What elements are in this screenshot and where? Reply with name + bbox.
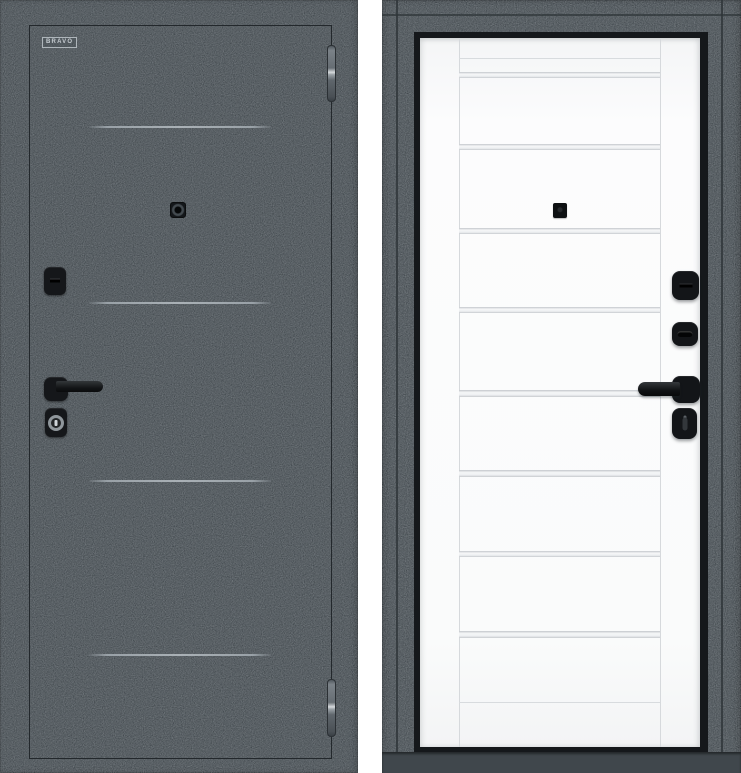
frame-groove-top bbox=[382, 14, 741, 16]
glass-strip bbox=[459, 551, 660, 557]
thumbturn-knob bbox=[678, 331, 693, 337]
door-product-photo: BRAVO bbox=[0, 0, 741, 773]
white-door-leaf bbox=[420, 38, 700, 747]
rail-seam-bottom bbox=[459, 702, 660, 703]
glass-strip bbox=[459, 470, 660, 477]
decorative-line bbox=[89, 480, 271, 482]
privacy-turn-escutcheon bbox=[672, 408, 697, 439]
cylinder-lock bbox=[45, 408, 67, 437]
glass-strip bbox=[459, 228, 660, 234]
thumbturn-escutcheon-lower bbox=[672, 322, 698, 346]
glass-strip bbox=[459, 307, 660, 313]
threshold bbox=[382, 752, 741, 773]
door-leaf-edge-outline bbox=[29, 25, 332, 759]
hinge-bottom bbox=[327, 679, 336, 737]
glass-strip bbox=[459, 631, 660, 638]
privacy-knob bbox=[682, 417, 687, 430]
decorative-line bbox=[89, 302, 271, 304]
hinge-top bbox=[327, 45, 336, 102]
decorative-line bbox=[89, 126, 271, 128]
glass-strip bbox=[459, 144, 660, 150]
peephole bbox=[170, 202, 186, 218]
keyhole-slot bbox=[50, 280, 60, 283]
door-exterior-view: BRAVO bbox=[0, 0, 358, 773]
brand-logo: BRAVO bbox=[42, 37, 77, 48]
door-interior-view bbox=[382, 0, 741, 773]
peephole bbox=[553, 203, 567, 218]
keyhole bbox=[55, 420, 58, 426]
frame-groove-left bbox=[396, 0, 398, 752]
lever-handle bbox=[638, 382, 680, 396]
thumbturn-escutcheon-upper bbox=[672, 271, 699, 300]
decorative-line bbox=[89, 654, 271, 656]
deadbolt-escutcheon bbox=[44, 267, 66, 295]
turn-slot bbox=[679, 284, 692, 287]
glass-strip bbox=[459, 72, 660, 78]
rail-seam-top bbox=[459, 58, 660, 59]
frame-groove-right bbox=[721, 0, 723, 752]
glass-strip bbox=[459, 390, 660, 397]
lever-handle bbox=[56, 381, 103, 392]
